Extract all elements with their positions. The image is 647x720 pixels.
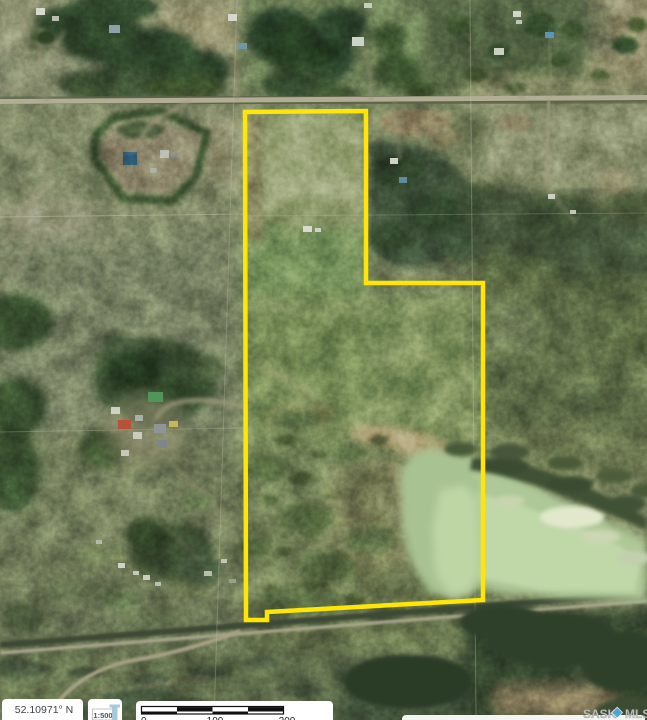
svg-text:200: 200 (279, 716, 296, 720)
svg-text:52.10971° N: 52.10971° N (15, 704, 74, 716)
svg-text:0: 0 (141, 716, 147, 720)
svg-text:SASK: SASK (583, 707, 617, 720)
svg-text:100: 100 (207, 716, 224, 720)
svg-text:MLS: MLS (625, 707, 647, 720)
svg-text:1:500: 1:500 (93, 711, 112, 720)
